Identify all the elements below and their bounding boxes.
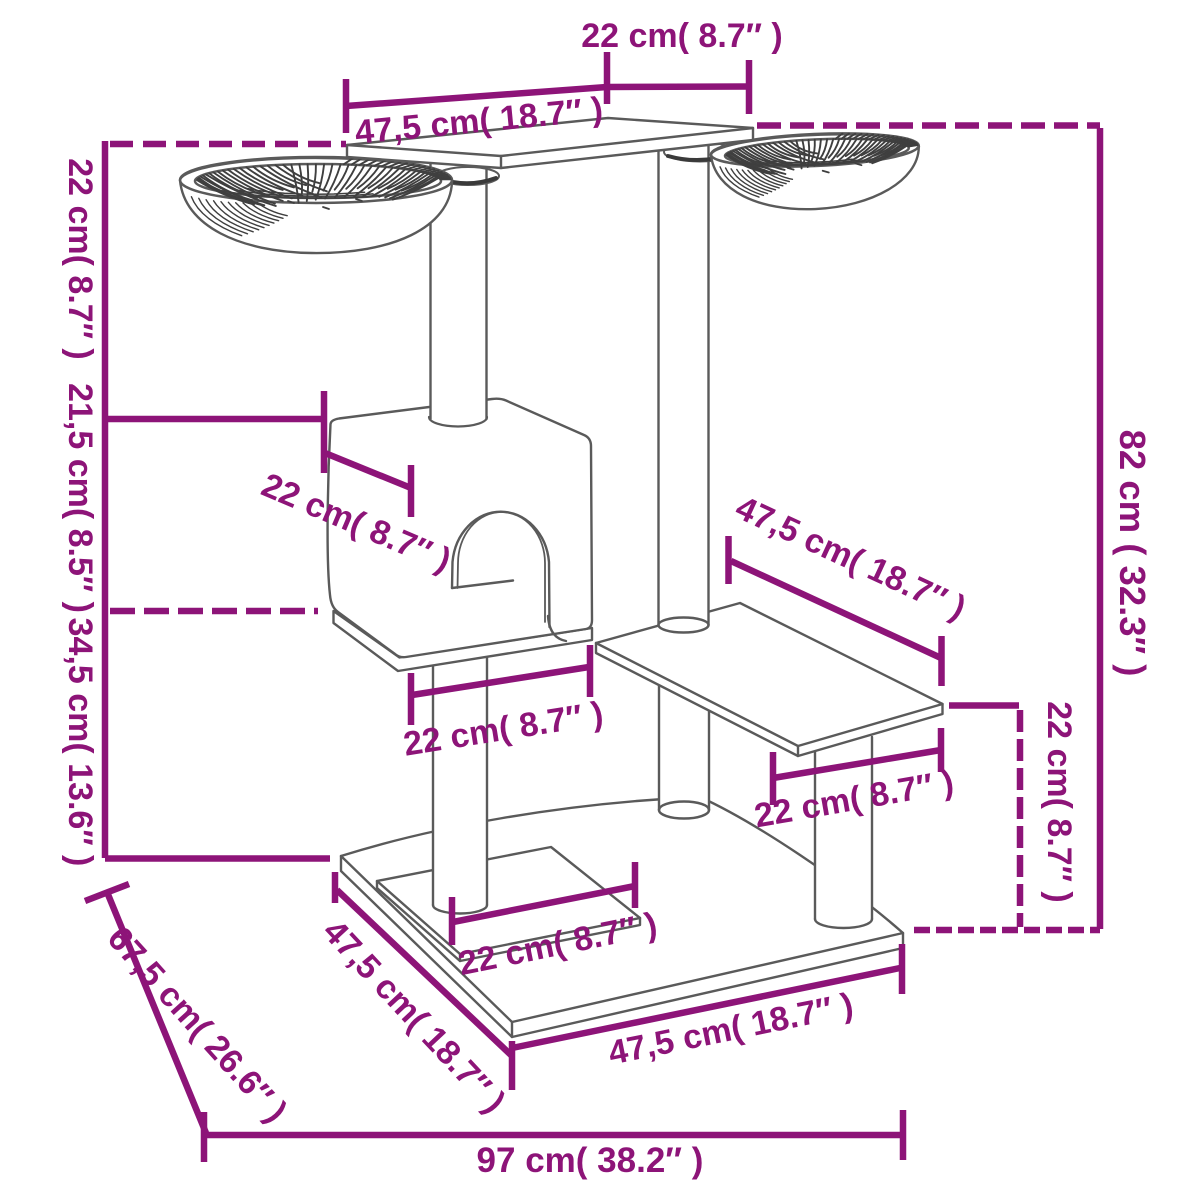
svg-text:21,5 cm( 8.5″ ): 21,5 cm( 8.5″ ) [61,383,99,613]
svg-text:22 cm( 8.7″ ): 22 cm( 8.7″ ) [1040,701,1078,903]
svg-text:34,5 cm( 13.6″ ): 34,5 cm( 13.6″ ) [61,618,99,867]
svg-text:97 cm( 38.2″ ): 97 cm( 38.2″ ) [477,1141,704,1180]
svg-text:22 cm( 8.7″ ): 22 cm( 8.7″ ) [61,158,99,360]
svg-text:22 cm( 8.7″ ): 22 cm( 8.7″ ) [581,17,783,55]
svg-text:82 cm ( 32.3″ ): 82 cm ( 32.3″ ) [1112,430,1153,677]
